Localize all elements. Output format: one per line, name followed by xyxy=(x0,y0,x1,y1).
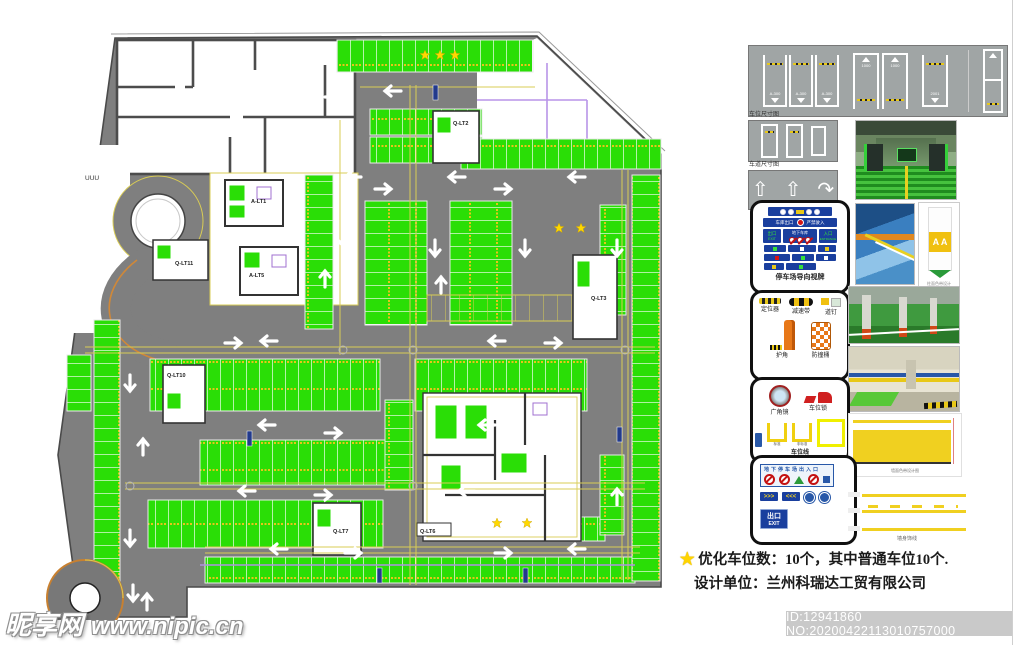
page-divider xyxy=(1012,0,1013,645)
facility-item: 道钉 xyxy=(821,298,841,316)
image-id-bar: ID:12941860 NO:20200422113010757000 xyxy=(786,611,1012,636)
wall-band-caption: 墙面色带设计图 xyxy=(849,468,961,474)
column-letters: A A xyxy=(929,232,951,252)
stall-diagram: 1000 xyxy=(853,53,879,109)
entrance-render-photo xyxy=(855,120,957,200)
dim-panel-a xyxy=(748,120,838,162)
direction-sign-rows xyxy=(764,245,836,270)
facility-item: 减速带 xyxy=(789,298,813,315)
facilities-panel: 定位器 减速带 道钉 护角 防撞桶 xyxy=(750,290,850,381)
exit-warning-sign: 车库出口 严禁驶入 xyxy=(763,218,837,227)
facility-item: 护角 xyxy=(770,320,795,359)
core-label: A-LT5 xyxy=(249,273,264,279)
garage-photo-blue xyxy=(855,203,915,285)
watermark-url: www.nipic.cn xyxy=(91,613,243,641)
crash-barrel-icon xyxy=(811,322,831,350)
wall-stripe-diagrams: 墙身饰线 xyxy=(848,490,966,542)
entrance-sign: 地下停车场出入口 xyxy=(760,464,834,487)
watermark: 昵享网 www.nipic.cn xyxy=(5,605,243,642)
designer-note: 设计单位：兰州科瑞达工贸有限公司 xyxy=(694,572,926,593)
accessory-item: 车位锁 xyxy=(805,385,832,412)
lane-arrow-icon: ⇧ xyxy=(785,180,802,200)
core-label: Q-LT6 xyxy=(420,529,435,535)
dim-panel-a-caption: 车位尺寸图 xyxy=(749,112,779,119)
core-label: Q-LT7 xyxy=(333,529,348,535)
facility-item: 定位器 xyxy=(759,298,781,313)
lane-arrow-icon: ↷ xyxy=(817,180,834,200)
exit-entrance-signs: 出口EXIT 地下车库 入口ENTRANCE xyxy=(763,229,837,243)
column-design-card: A A 柱面色带设计 xyxy=(918,202,960,290)
exit-sign: 出口 EXIT xyxy=(760,509,788,529)
optimization-note: ★ 优化车位数：10个，其中普通车位10个. xyxy=(680,548,948,569)
signage-panel-caption: 停车场导向视牌 xyxy=(776,272,825,282)
stall-diagram: A-300 xyxy=(789,55,813,107)
core-label: Q-LT11 xyxy=(175,261,193,267)
stall-diagram: 1000 xyxy=(882,53,908,109)
accessories-panel: 广角镜 车位锁 标准 非标准 车位线 xyxy=(750,377,850,464)
stall-diagram: A-300 xyxy=(815,55,839,107)
core-label: Q-LT3 xyxy=(591,296,606,302)
equipment-rooms xyxy=(117,40,355,174)
core-label: Q-LT2 xyxy=(453,121,468,127)
entrance-sign-panel: 地下停车场出入口 >>> <<< 出口 EXIT xyxy=(750,455,857,545)
facility-item: 防撞桶 xyxy=(811,322,831,359)
speed-bump-icon xyxy=(789,298,813,306)
optimization-text: 优化车位数：10个，其中普通车位10个. xyxy=(698,552,948,568)
floor-plan: UUU A-LT1 A-LT5 Q-LT11 xyxy=(25,25,695,620)
garage-photo-green xyxy=(848,286,960,344)
corner-guard-icon xyxy=(784,320,795,350)
core-label: A-LT1 xyxy=(251,199,266,205)
star-icon: ★ xyxy=(680,552,695,568)
core-label: Q-LT10 xyxy=(167,373,186,379)
accessory-item: 广角镜 xyxy=(769,385,791,416)
stall-diagram xyxy=(983,49,1003,113)
dim-panel-b-caption: 车道尺寸图 xyxy=(749,162,779,169)
convex-mirror-icon xyxy=(769,385,791,407)
lane-arrow-icon: ⇧ xyxy=(752,180,769,200)
chevron-chips: >>> <<< xyxy=(760,492,830,503)
plan-misc-label: UUU xyxy=(85,175,99,182)
stripes-caption: 墙身饰线 xyxy=(848,535,966,542)
wall-band-elevation: 墙面色带设计图 xyxy=(848,413,962,477)
garage-photo-cream xyxy=(848,346,960,412)
stall-dimension-panel: A-300 A-300 A-300 1000 1000 2001 xyxy=(748,45,1008,117)
garage-sign xyxy=(768,207,832,216)
watermark-site: 昵享网 xyxy=(5,605,83,642)
design-sheet: UUU A-LT1 A-LT5 Q-LT11 xyxy=(0,0,1024,645)
stall-diagram: A-300 xyxy=(763,55,787,107)
center-core-building xyxy=(423,393,581,541)
stall-diagram: 2001 xyxy=(922,55,948,107)
signage-panel: 车库出口 严禁驶入 出口EXIT 地下车库 入口ENTRANCE xyxy=(750,200,850,294)
